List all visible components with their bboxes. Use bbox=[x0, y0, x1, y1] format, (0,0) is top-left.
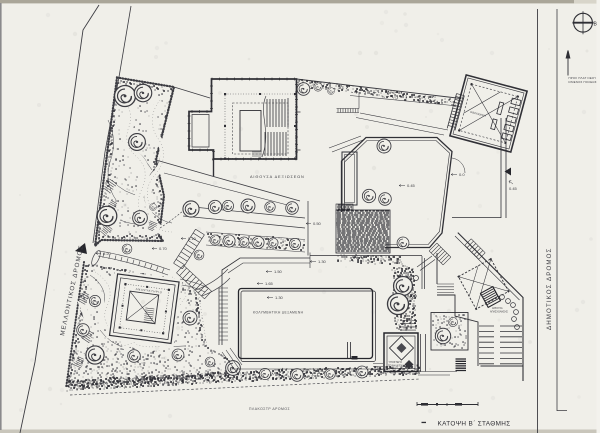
svg-text:ΑΠΑΣΧΟΛΗΣΗΣ: ΑΠΑΣΧΟΛΗΣΗΣ bbox=[490, 311, 508, 314]
svg-text:1.50: 1.50 bbox=[274, 269, 283, 274]
svg-text:0.45: 0.45 bbox=[509, 186, 518, 191]
svg-text:ΔΗΜΟΤΙΚΟΣ ΔΡΟΜΟΣ: ΔΗΜΟΤΙΚΟΣ ΔΡΟΜΟΣ bbox=[546, 248, 553, 330]
svg-text:0.50: 0.50 bbox=[313, 221, 322, 226]
svg-text:1.30: 1.30 bbox=[275, 295, 284, 300]
svg-text:1.30: 1.30 bbox=[318, 259, 327, 264]
svg-text:ΠΟΔΗΛΑΤΩΝ: ΠΟΔΗΛΑΤΩΝ bbox=[388, 365, 404, 368]
svg-text:0.45: 0.45 bbox=[407, 183, 416, 188]
svg-text:0.0: 0.0 bbox=[459, 172, 465, 177]
svg-text:ΚΑΤΟΨΗ Β΄ ΣΤΑΘΜΗΣ: ΚΑΤΟΨΗ Β΄ ΣΤΑΘΜΗΣ bbox=[438, 421, 511, 428]
svg-text:1.65: 1.65 bbox=[265, 281, 274, 286]
svg-text:ΠΛΑΚΟΣΤΡ ΔΡΟΜΟΣ: ΠΛΑΚΟΣΤΡ ΔΡΟΜΟΣ bbox=[249, 407, 290, 411]
svg-text:ΑΙΘΟΥΣΑ ΔΕΞΙΩΣΕΩΝ: ΑΙΘΟΥΣΑ ΔΕΞΙΩΣΕΩΝ bbox=[250, 175, 305, 179]
svg-text:ΛΙΜΕΝΟΣ ΠΟΛΕΩΣ: ΛΙΜΕΝΟΣ ΠΟΛΕΩΣ bbox=[568, 80, 597, 84]
svg-text:ΚΟΛΥΜΒΗΤΙΚΗ ΔΕΞΑΜΕΝΗ: ΚΟΛΥΜΒΗΤΙΚΗ ΔΕΞΑΜΕΝΗ bbox=[253, 311, 304, 315]
svg-text:0.70: 0.70 bbox=[159, 246, 168, 251]
